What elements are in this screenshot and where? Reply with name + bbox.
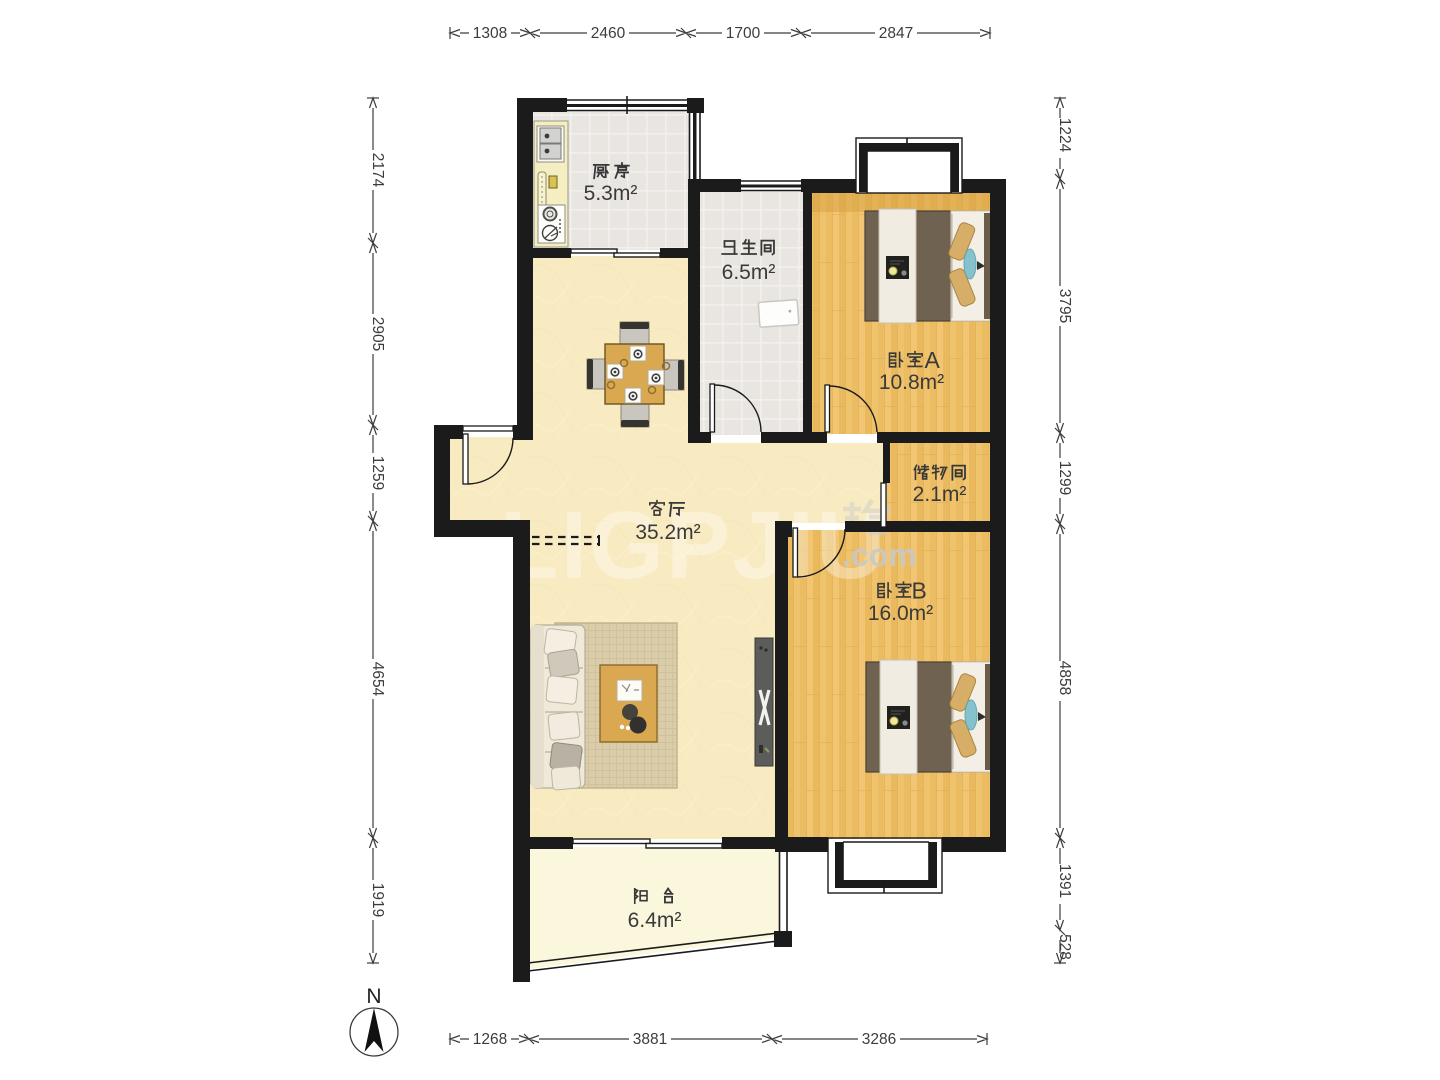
svg-text:16.0m²: 16.0m² [868,602,933,625]
svg-text:5.3m²: 5.3m² [584,182,638,205]
svg-text:1259: 1259 [369,456,386,490]
svg-text:1919: 1919 [369,883,386,917]
svg-text:2905: 2905 [369,317,386,351]
svg-text:N: N [366,985,381,1008]
svg-text:.com: .com [842,537,917,573]
svg-text:6.5m²: 6.5m² [722,261,776,284]
svg-text:35.2m²: 35.2m² [635,521,700,544]
svg-text:1268: 1268 [473,1031,507,1048]
svg-text:1700: 1700 [726,25,761,42]
svg-text:3286: 3286 [862,1031,896,1048]
svg-text:3795: 3795 [1056,289,1073,323]
svg-text:6.4m²: 6.4m² [628,909,682,932]
svg-text:4654: 4654 [369,662,386,697]
svg-text:1299: 1299 [1056,461,1073,495]
svg-text:A: A [925,347,941,373]
svg-text:1308: 1308 [473,25,507,42]
svg-text:2.1m²: 2.1m² [913,483,967,506]
svg-text:4858: 4858 [1056,661,1073,695]
svg-text:LIGPJIU: LIGPJIU [500,492,887,599]
svg-text:2460: 2460 [591,25,626,42]
svg-text:1224: 1224 [1056,118,1073,153]
svg-text:2847: 2847 [879,25,913,42]
svg-text:2174: 2174 [369,153,386,188]
svg-text:528: 528 [1056,934,1073,960]
svg-text:B: B [912,578,927,604]
svg-text:3881: 3881 [633,1031,667,1048]
svg-text:10.8m²: 10.8m² [879,371,944,394]
svg-text:1391: 1391 [1056,864,1073,898]
